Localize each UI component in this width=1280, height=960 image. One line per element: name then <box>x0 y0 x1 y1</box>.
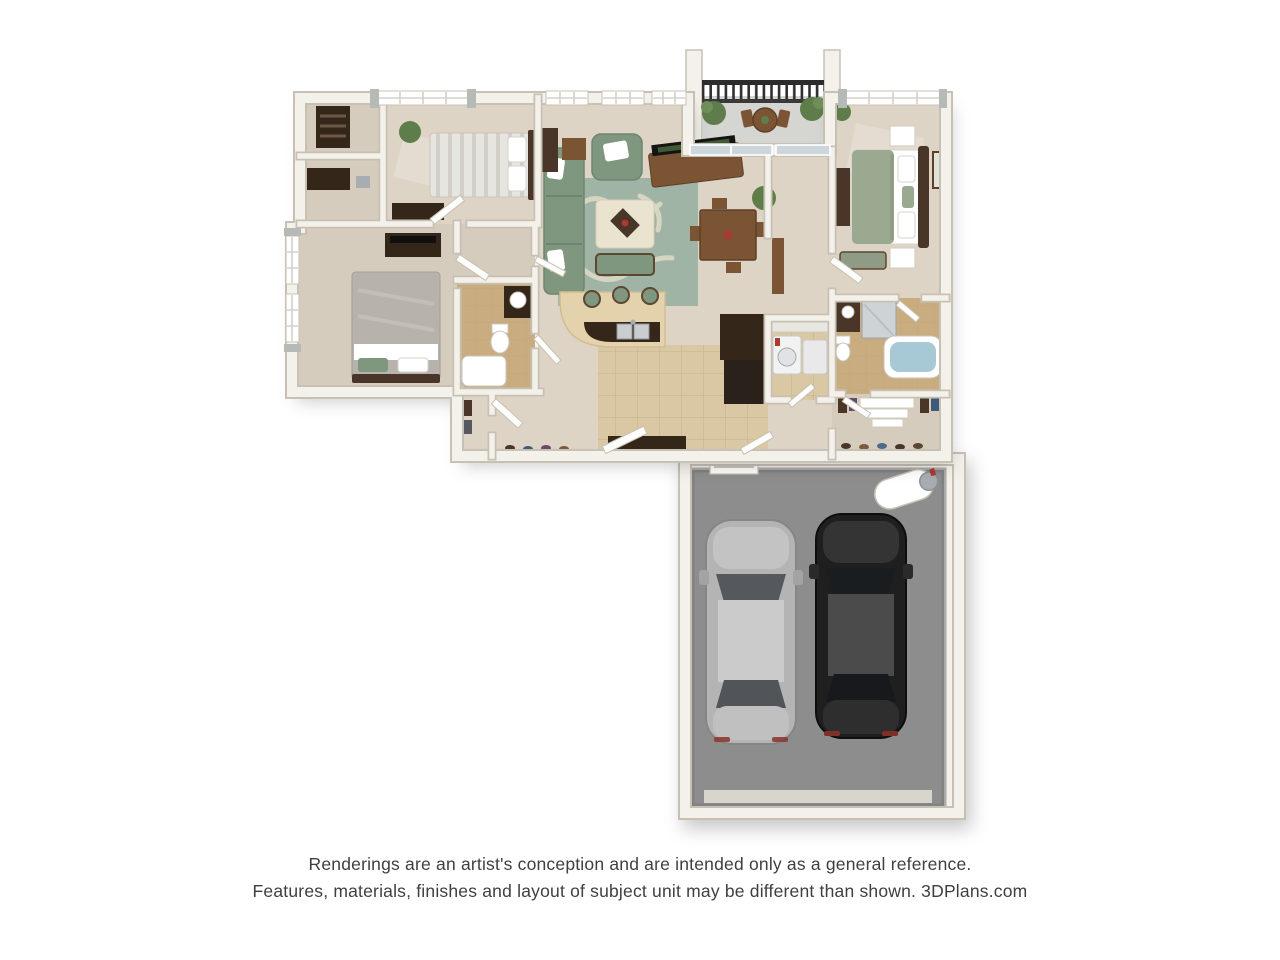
tv <box>390 236 436 243</box>
pillow <box>508 166 526 191</box>
shelf <box>860 398 914 408</box>
plant <box>399 121 421 143</box>
car-black <box>809 514 913 738</box>
balcony-sliding-doors <box>690 145 830 155</box>
shoes <box>841 443 851 449</box>
desk <box>304 168 350 190</box>
garage <box>678 452 966 820</box>
pantry-cabinet <box>724 360 764 404</box>
dining-chair <box>726 262 741 273</box>
dryer <box>803 340 827 374</box>
hanging-clothes <box>920 398 929 413</box>
unit <box>284 89 947 456</box>
shelf <box>866 409 908 418</box>
sink <box>510 292 526 308</box>
sink-bowl <box>617 324 632 339</box>
disclaimer-line-1: Renderings are an artist's conception an… <box>0 851 1280 878</box>
master-window <box>838 89 947 108</box>
accent-pillow <box>902 186 914 208</box>
etagere <box>542 128 558 172</box>
tub <box>462 356 506 386</box>
car-silver <box>699 520 803 744</box>
desk-box <box>356 176 370 188</box>
headboard <box>352 374 440 383</box>
hanging-clothes <box>931 398 939 411</box>
closet-2-floor <box>457 224 535 280</box>
garage-door-threshold <box>704 790 932 803</box>
centerpiece <box>724 231 733 240</box>
duvet <box>852 150 894 244</box>
shelf <box>872 419 903 427</box>
living-windows <box>546 91 686 105</box>
shoes <box>913 443 923 449</box>
bedroom-1-window <box>370 89 476 108</box>
washer-knob <box>775 338 780 346</box>
balcony <box>686 50 840 152</box>
dresser <box>836 168 850 226</box>
faucet <box>631 320 636 325</box>
headboard <box>918 146 929 248</box>
toilet <box>491 331 509 353</box>
refrigerator <box>720 314 764 360</box>
washer-door <box>778 348 796 366</box>
shoes <box>877 443 887 449</box>
pillow <box>898 212 915 238</box>
sink <box>842 306 854 318</box>
sink-bowl <box>634 324 649 339</box>
side-shelf <box>562 138 586 160</box>
dining-chair <box>712 198 727 209</box>
pillow <box>398 358 428 372</box>
nightstand <box>890 126 915 146</box>
laundry-closet <box>772 322 828 374</box>
nightstand <box>890 248 915 268</box>
pillow <box>358 358 388 372</box>
bathtub-water <box>890 342 936 372</box>
bench <box>596 254 654 275</box>
pillow <box>898 156 915 182</box>
bar-stool <box>642 288 658 304</box>
console-table <box>772 238 784 294</box>
bar-stool <box>584 291 600 307</box>
shelf <box>772 322 828 332</box>
pillow <box>508 137 526 162</box>
floorplan-page: Renderings are an artist's conception an… <box>0 0 1280 960</box>
floorplan-3d-rendering <box>0 0 1280 960</box>
disclaimer: Renderings are an artist's conception an… <box>0 851 1280 905</box>
bar-stool <box>613 287 629 303</box>
toilet <box>836 343 850 361</box>
disclaimer-line-2: Features, materials, finishes and layout… <box>0 878 1280 905</box>
